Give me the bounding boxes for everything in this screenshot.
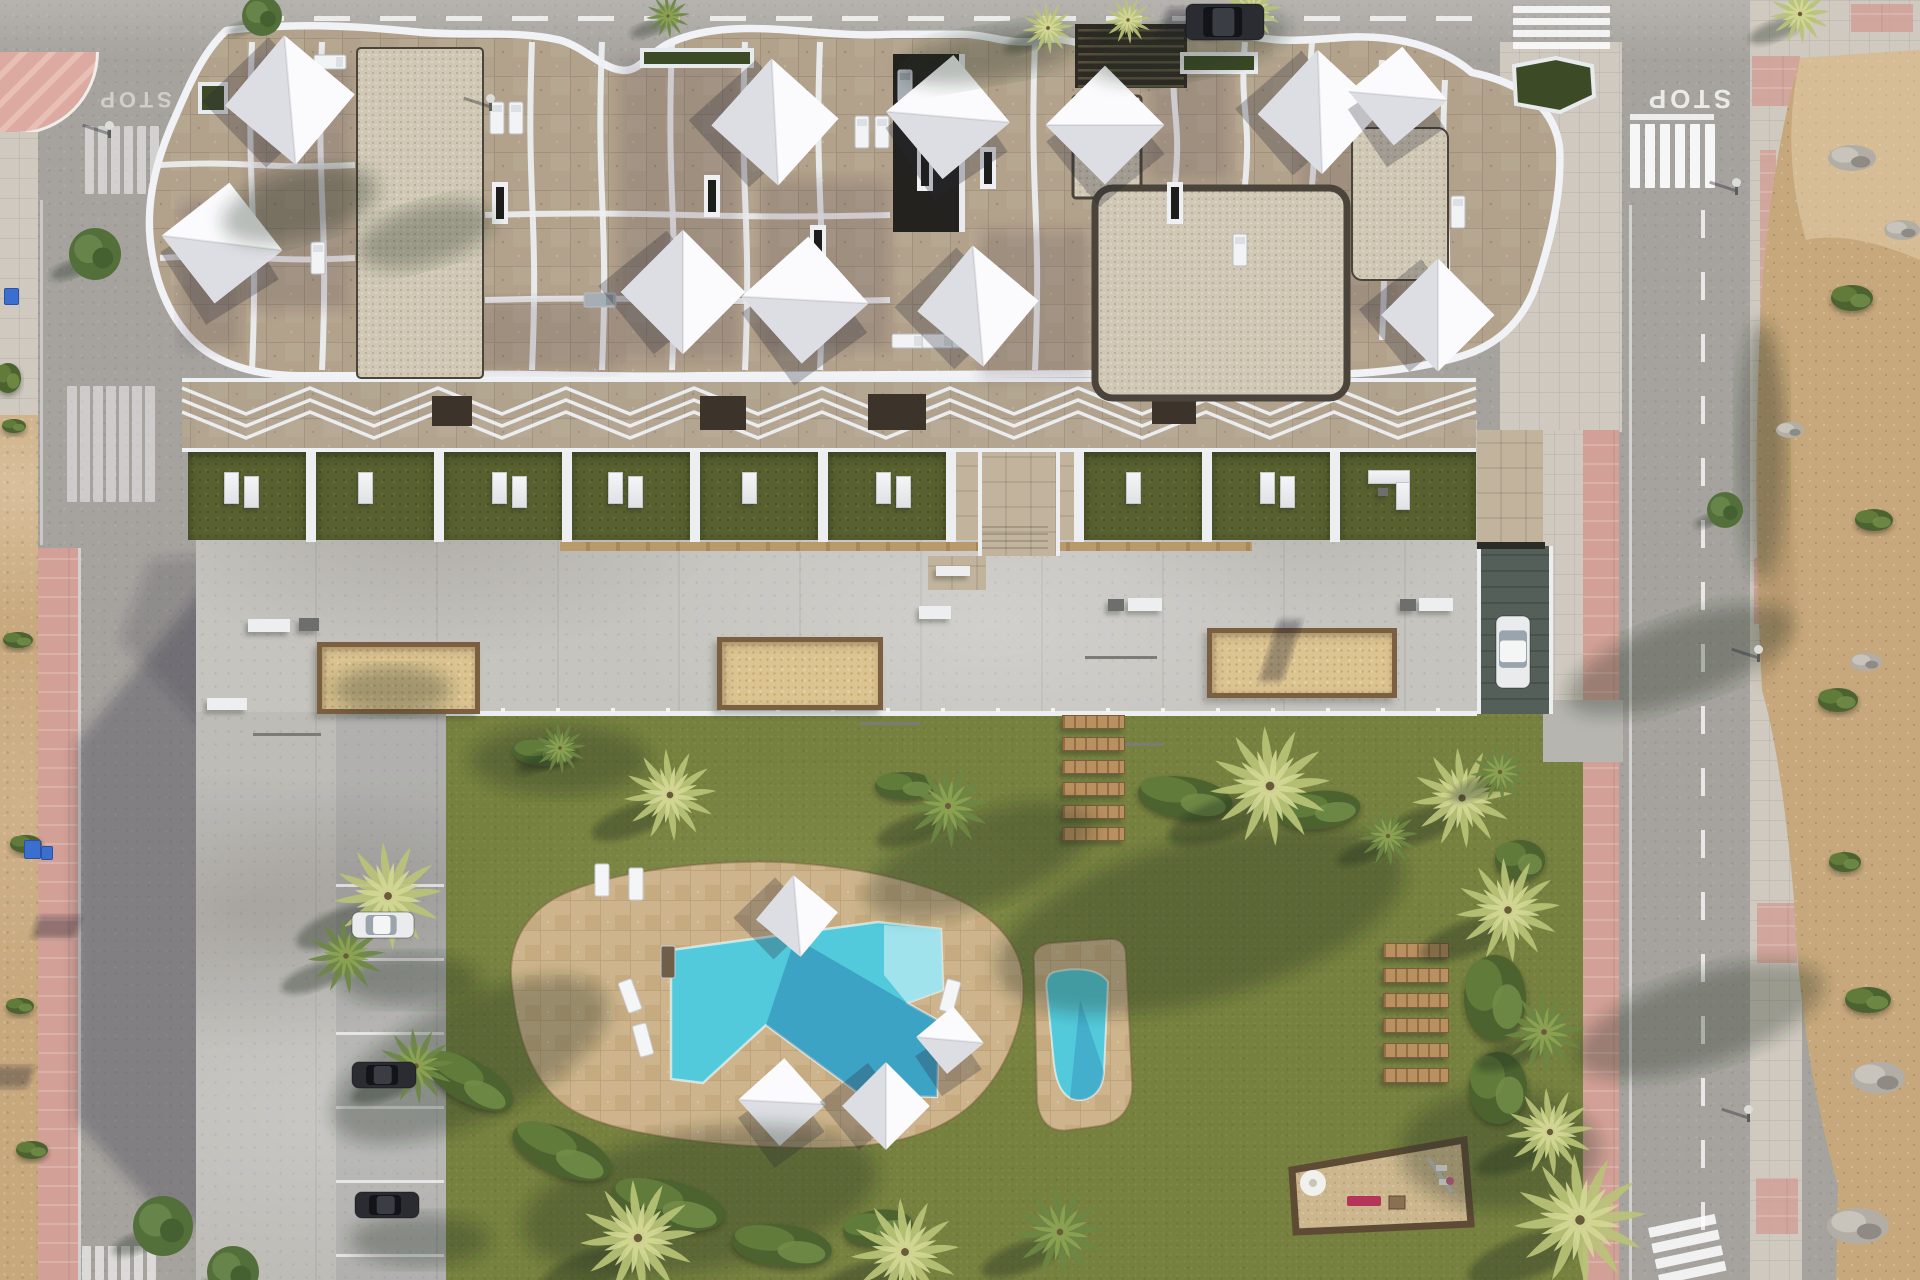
car-roof: [377, 1196, 395, 1214]
car-roof: [1500, 640, 1526, 662]
street-lamp-head: [1744, 1105, 1753, 1114]
car-shadow: [1259, 620, 1303, 681]
street-lamp-head: [105, 121, 114, 130]
car-white: [1259, 616, 1530, 688]
street-lamp-head: [1732, 178, 1741, 187]
recycling-bin: [24, 840, 41, 859]
car-roof: [374, 1066, 392, 1084]
street-lamp-head: [1754, 645, 1763, 654]
car-shadow: [31, 916, 82, 938]
car-shadow: [0, 1066, 34, 1088]
vehicles: [0, 0, 1920, 1280]
recycling-bin: [41, 846, 53, 860]
street-lamp-head: [486, 94, 495, 103]
car-dark: [1157, 4, 1264, 40]
car-roof: [1213, 8, 1235, 36]
recycling-bin: [4, 288, 19, 305]
car-dark: [0, 1062, 416, 1088]
car-roof: [373, 916, 390, 934]
car-white: [31, 912, 414, 938]
car-dark: [0, 1192, 419, 1218]
aerial-render: STOPSTOP: [0, 0, 1920, 1280]
